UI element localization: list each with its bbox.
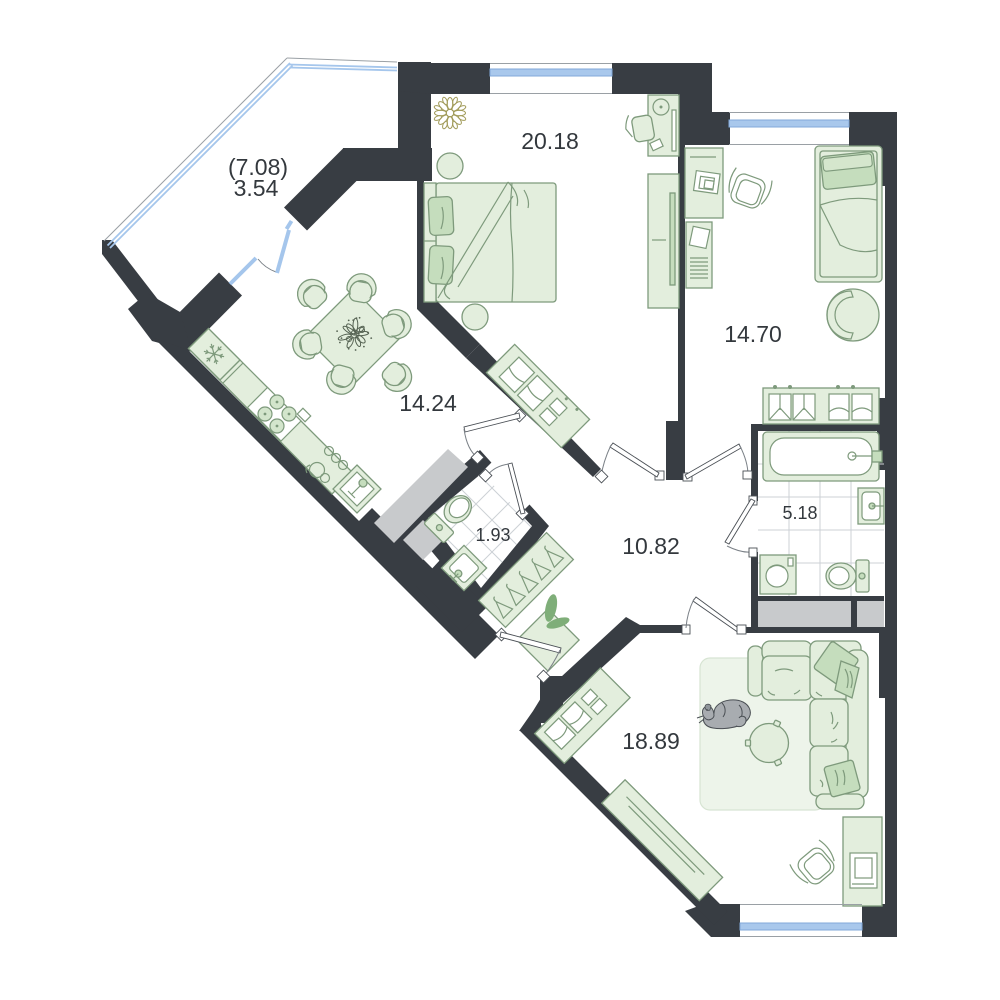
svg-text:18.89: 18.89 [622,728,680,754]
svg-text:5.18: 5.18 [782,503,817,523]
svg-text:1.93: 1.93 [475,525,510,545]
svg-text:10.82: 10.82 [622,533,680,559]
svg-text:20.18: 20.18 [521,128,579,154]
svg-text:14.70: 14.70 [724,321,782,347]
svg-text:3.54: 3.54 [234,175,279,201]
svg-text:14.24: 14.24 [399,390,457,416]
